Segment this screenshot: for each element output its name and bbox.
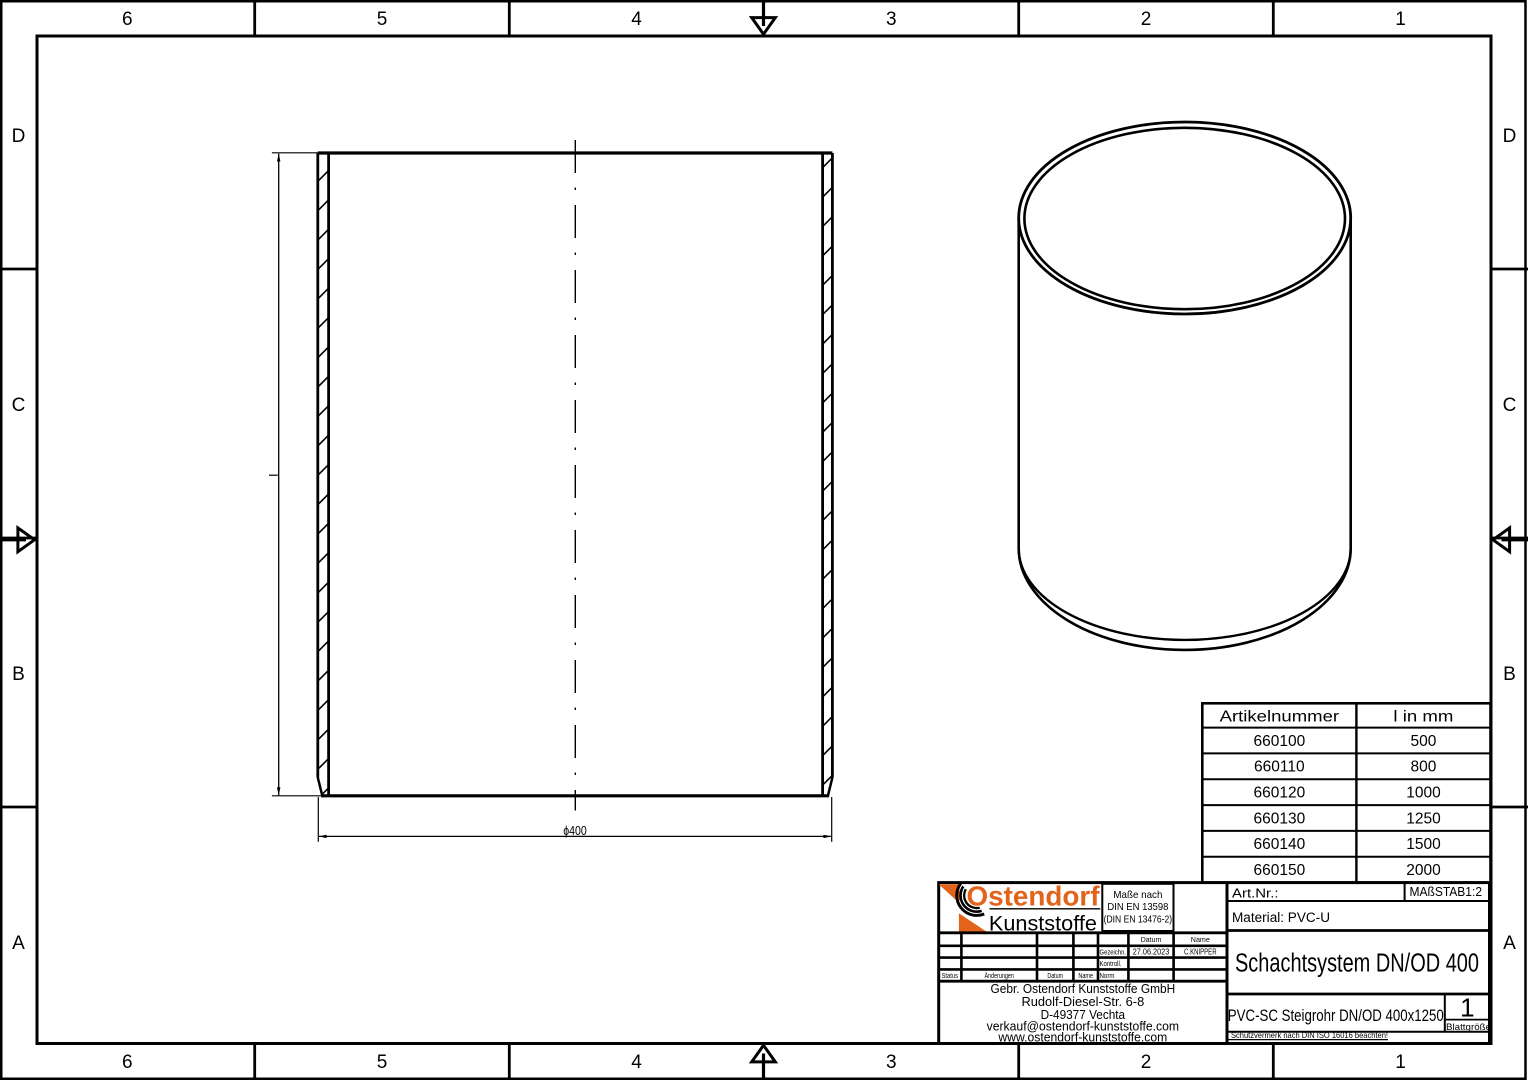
svg-text:Kontroll.: Kontroll. (1100, 961, 1122, 968)
svg-text:27.06.2023: 27.06.2023 (1133, 948, 1170, 957)
svg-text:Schachtsystem DN/OD 400: Schachtsystem DN/OD 400 (1235, 950, 1479, 978)
svg-text:Schutzvermerk nach DIN ISO 160: Schutzvermerk nach DIN ISO 16016 beachte… (1231, 1030, 1388, 1040)
svg-text:1500: 1500 (1406, 836, 1441, 853)
svg-text:Datum: Datum (1141, 935, 1162, 944)
svg-text:Norm: Norm (1100, 973, 1115, 980)
svg-text:1: 1 (1395, 1052, 1406, 1073)
svg-text:B: B (1503, 664, 1516, 685)
svg-text:660110: 660110 (1254, 759, 1305, 776)
svg-text:Name: Name (1191, 935, 1210, 944)
svg-text:Material: PVC-U: Material: PVC-U (1232, 910, 1330, 925)
svg-text:D: D (12, 126, 26, 147)
svg-text:660150: 660150 (1253, 862, 1305, 879)
svg-text:l in mm: l in mm (1393, 709, 1453, 726)
svg-text:Blattgröße: Blattgröße (1446, 1022, 1491, 1033)
svg-text:4: 4 (631, 1052, 642, 1073)
svg-text:4: 4 (631, 9, 642, 30)
svg-text:5: 5 (377, 1052, 388, 1073)
svg-text:Status: Status (942, 973, 959, 980)
svg-text:MAßSTAB1:2: MAßSTAB1:2 (1410, 885, 1483, 899)
svg-text:A: A (12, 933, 25, 954)
svg-text:5: 5 (377, 9, 388, 30)
svg-text:Änderungen: Änderungen (984, 972, 1014, 980)
svg-text:800: 800 (1411, 759, 1437, 776)
svg-text:500: 500 (1411, 733, 1437, 750)
svg-text:6: 6 (122, 1052, 133, 1073)
svg-text:1: 1 (1395, 9, 1406, 30)
svg-text:Name: Name (1078, 973, 1093, 980)
svg-text:Gezeichn.: Gezeichn. (1100, 949, 1127, 956)
svg-text:Artikelnummer: Artikelnummer (1220, 709, 1340, 726)
svg-text:2: 2 (1141, 9, 1152, 30)
svg-text:1: 1 (1460, 993, 1474, 1023)
svg-text:DIN EN 13598: DIN EN 13598 (1107, 901, 1168, 913)
svg-text:2: 2 (1141, 1052, 1152, 1073)
svg-text:D: D (1503, 126, 1517, 147)
svg-text:Datum: Datum (1047, 973, 1063, 980)
svg-text:2000: 2000 (1406, 862, 1441, 879)
svg-text:C: C (1503, 395, 1517, 416)
svg-text:www.ostendorf-kunststoffe.com: www.ostendorf-kunststoffe.com (997, 1030, 1167, 1045)
svg-text:3: 3 (886, 9, 897, 30)
svg-text:(DIN EN 13476-2): (DIN EN 13476-2) (1104, 913, 1173, 925)
svg-text:660140: 660140 (1253, 836, 1305, 853)
svg-text:C.KNIPPER: C.KNIPPER (1184, 948, 1217, 957)
svg-text:660120: 660120 (1253, 785, 1305, 802)
svg-text:ϕ400: ϕ400 (563, 824, 587, 838)
svg-text:1250: 1250 (1406, 810, 1441, 827)
svg-text:A: A (1503, 933, 1516, 954)
svg-text:PVC-SC Steigrohr DN/OD 400x125: PVC-SC Steigrohr DN/OD 400x1250 (1228, 1006, 1444, 1025)
svg-text:Ostendorf: Ostendorf (967, 880, 1101, 911)
svg-text:B: B (12, 664, 25, 685)
svg-text:660130: 660130 (1253, 810, 1305, 827)
svg-text:Maße nach: Maße nach (1113, 889, 1162, 901)
svg-text:6: 6 (122, 9, 133, 30)
svg-text:660100: 660100 (1253, 733, 1305, 750)
svg-text:C: C (12, 395, 26, 416)
svg-text:Art.Nr.:: Art.Nr.: (1232, 886, 1279, 901)
svg-text:1000: 1000 (1406, 785, 1441, 802)
svg-text:3: 3 (886, 1052, 897, 1073)
